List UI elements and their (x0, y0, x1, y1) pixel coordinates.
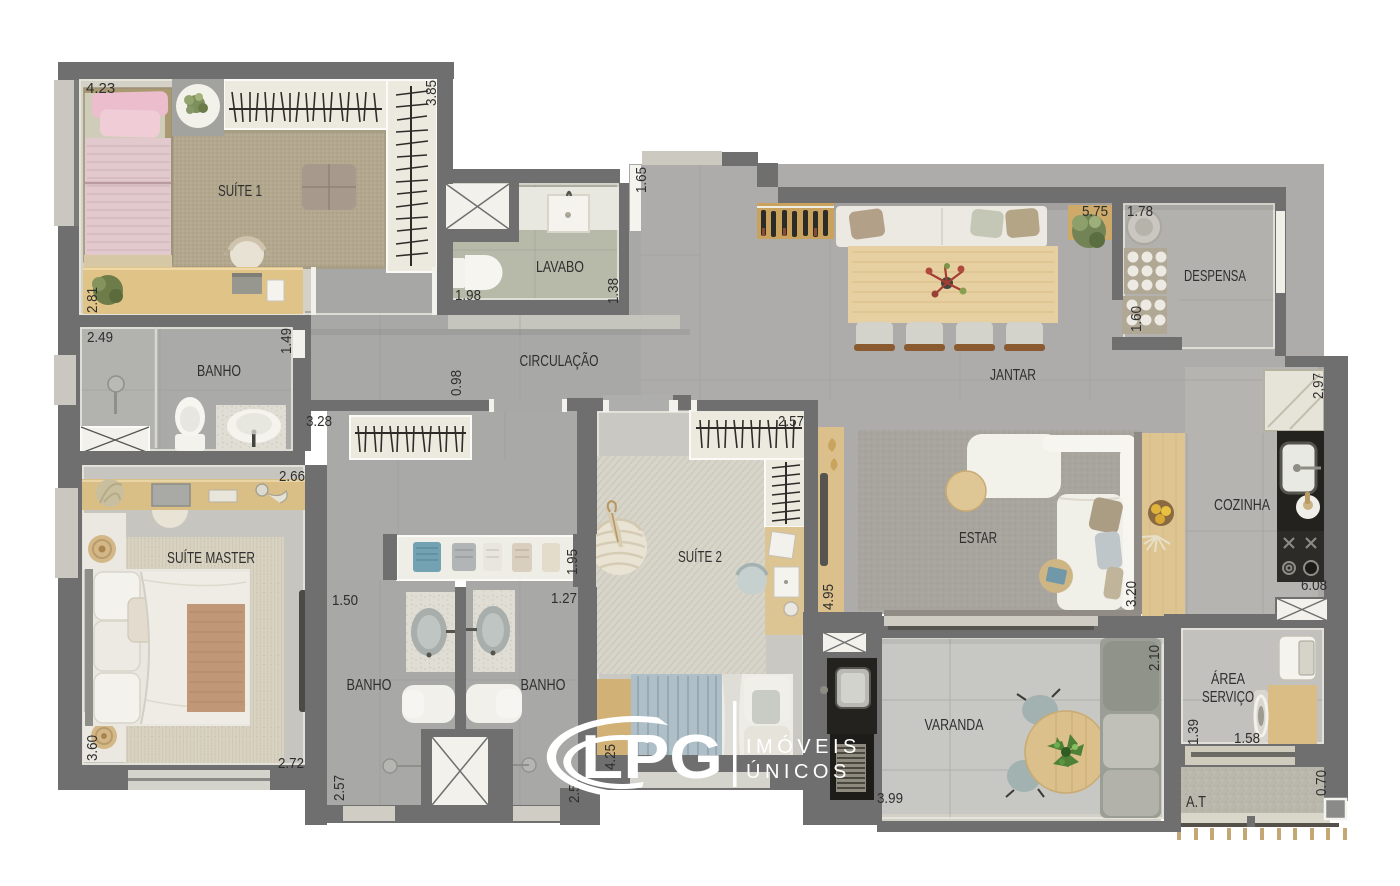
svg-text:ÚNICOS: ÚNICOS (746, 760, 851, 783)
svg-text:2.66: 2.66 (279, 468, 305, 485)
svg-text:1.50: 1.50 (332, 592, 358, 609)
svg-text:ÁREA: ÁREA (1211, 671, 1246, 688)
svg-text:3.60: 3.60 (84, 735, 101, 761)
svg-text:LPG: LPG (581, 723, 723, 792)
svg-text:2.81: 2.81 (84, 287, 101, 313)
svg-text:VARANDA: VARANDA (925, 717, 985, 734)
svg-text:1.98: 1.98 (455, 287, 481, 304)
svg-text:2.57: 2.57 (331, 775, 348, 801)
svg-text:2.49: 2.49 (87, 329, 113, 346)
svg-text:3.99: 3.99 (877, 790, 903, 807)
svg-text:BANHO: BANHO (521, 677, 566, 694)
svg-text:SUÍTE 1: SUÍTE 1 (218, 183, 262, 200)
svg-text:2.10: 2.10 (1146, 645, 1163, 671)
svg-text:1.60: 1.60 (1128, 306, 1145, 332)
svg-text:IMÓVEIS: IMÓVEIS (746, 735, 861, 758)
svg-text:BANHO: BANHO (347, 677, 392, 694)
svg-text:BANHO: BANHO (197, 363, 241, 380)
svg-text:4.95: 4.95 (820, 584, 837, 610)
svg-text:3.28: 3.28 (306, 413, 332, 430)
svg-text:3.20: 3.20 (1123, 581, 1140, 607)
svg-text:SUÍTE 2: SUÍTE 2 (678, 549, 722, 566)
svg-text:3.85: 3.85 (423, 80, 440, 106)
svg-text:A.T: A.T (1186, 794, 1206, 811)
svg-text:DESPENSA: DESPENSA (1184, 268, 1246, 285)
svg-text:1.58: 1.58 (1234, 730, 1260, 747)
svg-text:1.49: 1.49 (278, 328, 295, 354)
svg-text:1.38: 1.38 (605, 278, 622, 304)
svg-text:2.57: 2.57 (778, 413, 804, 430)
svg-text:4.23: 4.23 (86, 80, 115, 97)
svg-text:1.39: 1.39 (1185, 719, 1202, 745)
svg-text:SERVIÇO: SERVIÇO (1202, 689, 1254, 706)
svg-text:0.70: 0.70 (1313, 770, 1330, 796)
svg-text:LAVABO: LAVABO (536, 259, 584, 276)
svg-text:COZINHA: COZINHA (1214, 497, 1271, 514)
svg-text:6.08: 6.08 (1301, 577, 1327, 594)
svg-text:1.27: 1.27 (551, 590, 577, 607)
svg-text:0.98: 0.98 (448, 370, 465, 396)
svg-text:2.72: 2.72 (278, 755, 304, 772)
svg-text:JANTAR: JANTAR (990, 367, 1036, 384)
svg-text:5.75: 5.75 (1082, 203, 1108, 220)
svg-text:1.95: 1.95 (564, 549, 581, 575)
svg-text:SUÍTE MASTER: SUÍTE MASTER (167, 550, 255, 567)
svg-text:1.65: 1.65 (633, 167, 650, 193)
svg-text:2,97: 2,97 (1310, 373, 1327, 399)
svg-text:ESTAR: ESTAR (959, 530, 997, 547)
svg-text:1.78: 1.78 (1127, 203, 1153, 220)
svg-text:CIRCULAÇÃO: CIRCULAÇÃO (520, 353, 599, 370)
